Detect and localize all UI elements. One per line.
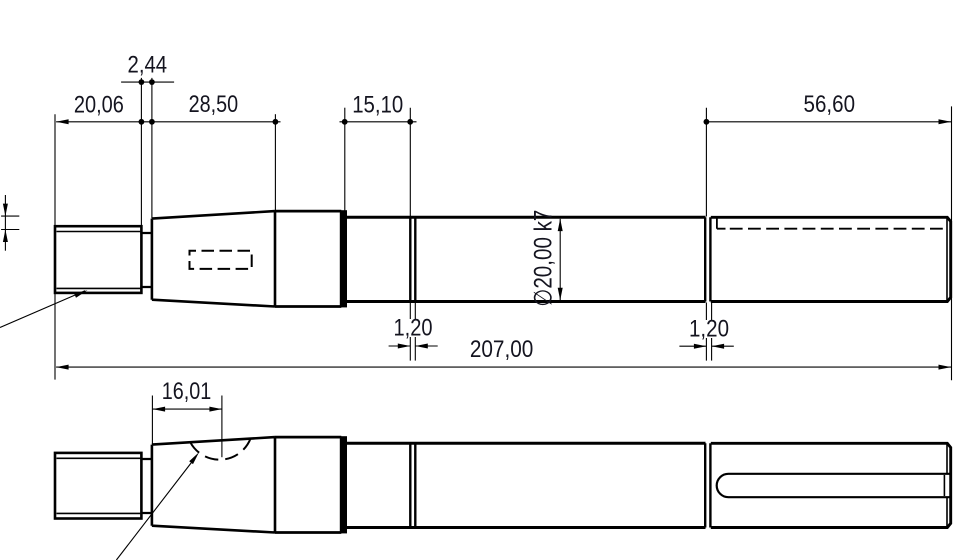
svg-text:1,20: 1,20 xyxy=(394,315,433,342)
svg-text:1,20: 1,20 xyxy=(689,316,729,343)
svg-text:16,01: 16,01 xyxy=(162,378,212,405)
svg-text:28,50: 28,50 xyxy=(189,91,239,118)
svg-text:20,06: 20,06 xyxy=(74,92,124,119)
svg-text:15,10: 15,10 xyxy=(352,92,403,119)
svg-text:56,60: 56,60 xyxy=(804,91,856,118)
svg-text:∅20,00 k7: ∅20,00 k7 xyxy=(530,210,558,307)
svg-text:2,44: 2,44 xyxy=(128,52,168,79)
svg-text:207,00: 207,00 xyxy=(470,336,534,363)
